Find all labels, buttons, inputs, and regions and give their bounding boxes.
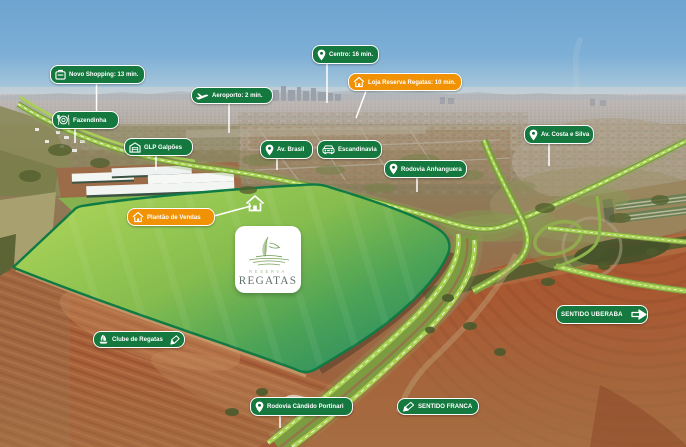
- svg-text:RESERVA: RESERVA: [249, 269, 287, 274]
- svg-text:REGATAS: REGATAS: [239, 275, 298, 287]
